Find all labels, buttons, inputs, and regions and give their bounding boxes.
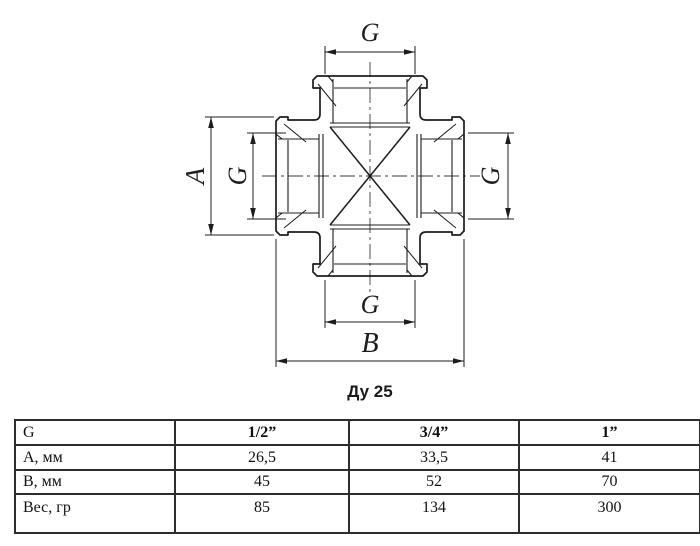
cell-a-2: 33,5 bbox=[349, 445, 519, 470]
row-header-weight: Вес, гр bbox=[15, 494, 175, 533]
dim-label-g-right: G bbox=[476, 166, 505, 185]
row-header-a-mm: А, мм bbox=[15, 445, 175, 470]
dimension-lines bbox=[205, 46, 514, 367]
cell-b-3: 70 bbox=[519, 470, 700, 494]
cell-g-three-quarter-inch: 3/4” bbox=[349, 420, 519, 445]
cell-b-2: 52 bbox=[349, 470, 519, 494]
cross-fitting-technical-drawing: G A G G G B Ду 25 bbox=[0, 0, 700, 418]
page: G A G G G B Ду 25 G 1/2” 3/4” 1” А, мм 2… bbox=[0, 0, 700, 546]
table-row-a-mm: А, мм 26,5 33,5 41 bbox=[15, 445, 700, 470]
table-row-weight: Вес, гр 85 134 300 bbox=[15, 494, 700, 533]
table-row-thread-size: G 1/2” 3/4” 1” bbox=[15, 420, 700, 445]
dim-label-b-bottom: B bbox=[361, 328, 378, 359]
dimension-arrowheads bbox=[208, 49, 511, 364]
dim-label-g-left: G bbox=[223, 166, 252, 185]
table-row-b-mm: В, мм 45 52 70 bbox=[15, 470, 700, 494]
spec-table: G 1/2” 3/4” 1” А, мм 26,5 33,5 41 В, мм … bbox=[14, 419, 700, 534]
row-header-b-mm: В, мм bbox=[15, 470, 175, 494]
cell-weight-3: 300 bbox=[519, 494, 700, 533]
cell-a-3: 41 bbox=[519, 445, 700, 470]
dim-label-g-top: G bbox=[361, 18, 380, 47]
cell-b-1: 45 bbox=[175, 470, 349, 494]
cell-g-half-inch: 1/2” bbox=[175, 420, 349, 445]
cell-g-one-inch: 1” bbox=[519, 420, 700, 445]
drawing-caption: Ду 25 bbox=[347, 382, 392, 401]
cell-weight-1: 85 bbox=[175, 494, 349, 533]
row-header-g: G bbox=[15, 420, 175, 445]
cell-a-1: 26,5 bbox=[175, 445, 349, 470]
dim-label-a-left: A bbox=[180, 167, 210, 186]
cell-weight-2: 134 bbox=[349, 494, 519, 533]
dim-label-g-bottom: G bbox=[361, 290, 380, 319]
